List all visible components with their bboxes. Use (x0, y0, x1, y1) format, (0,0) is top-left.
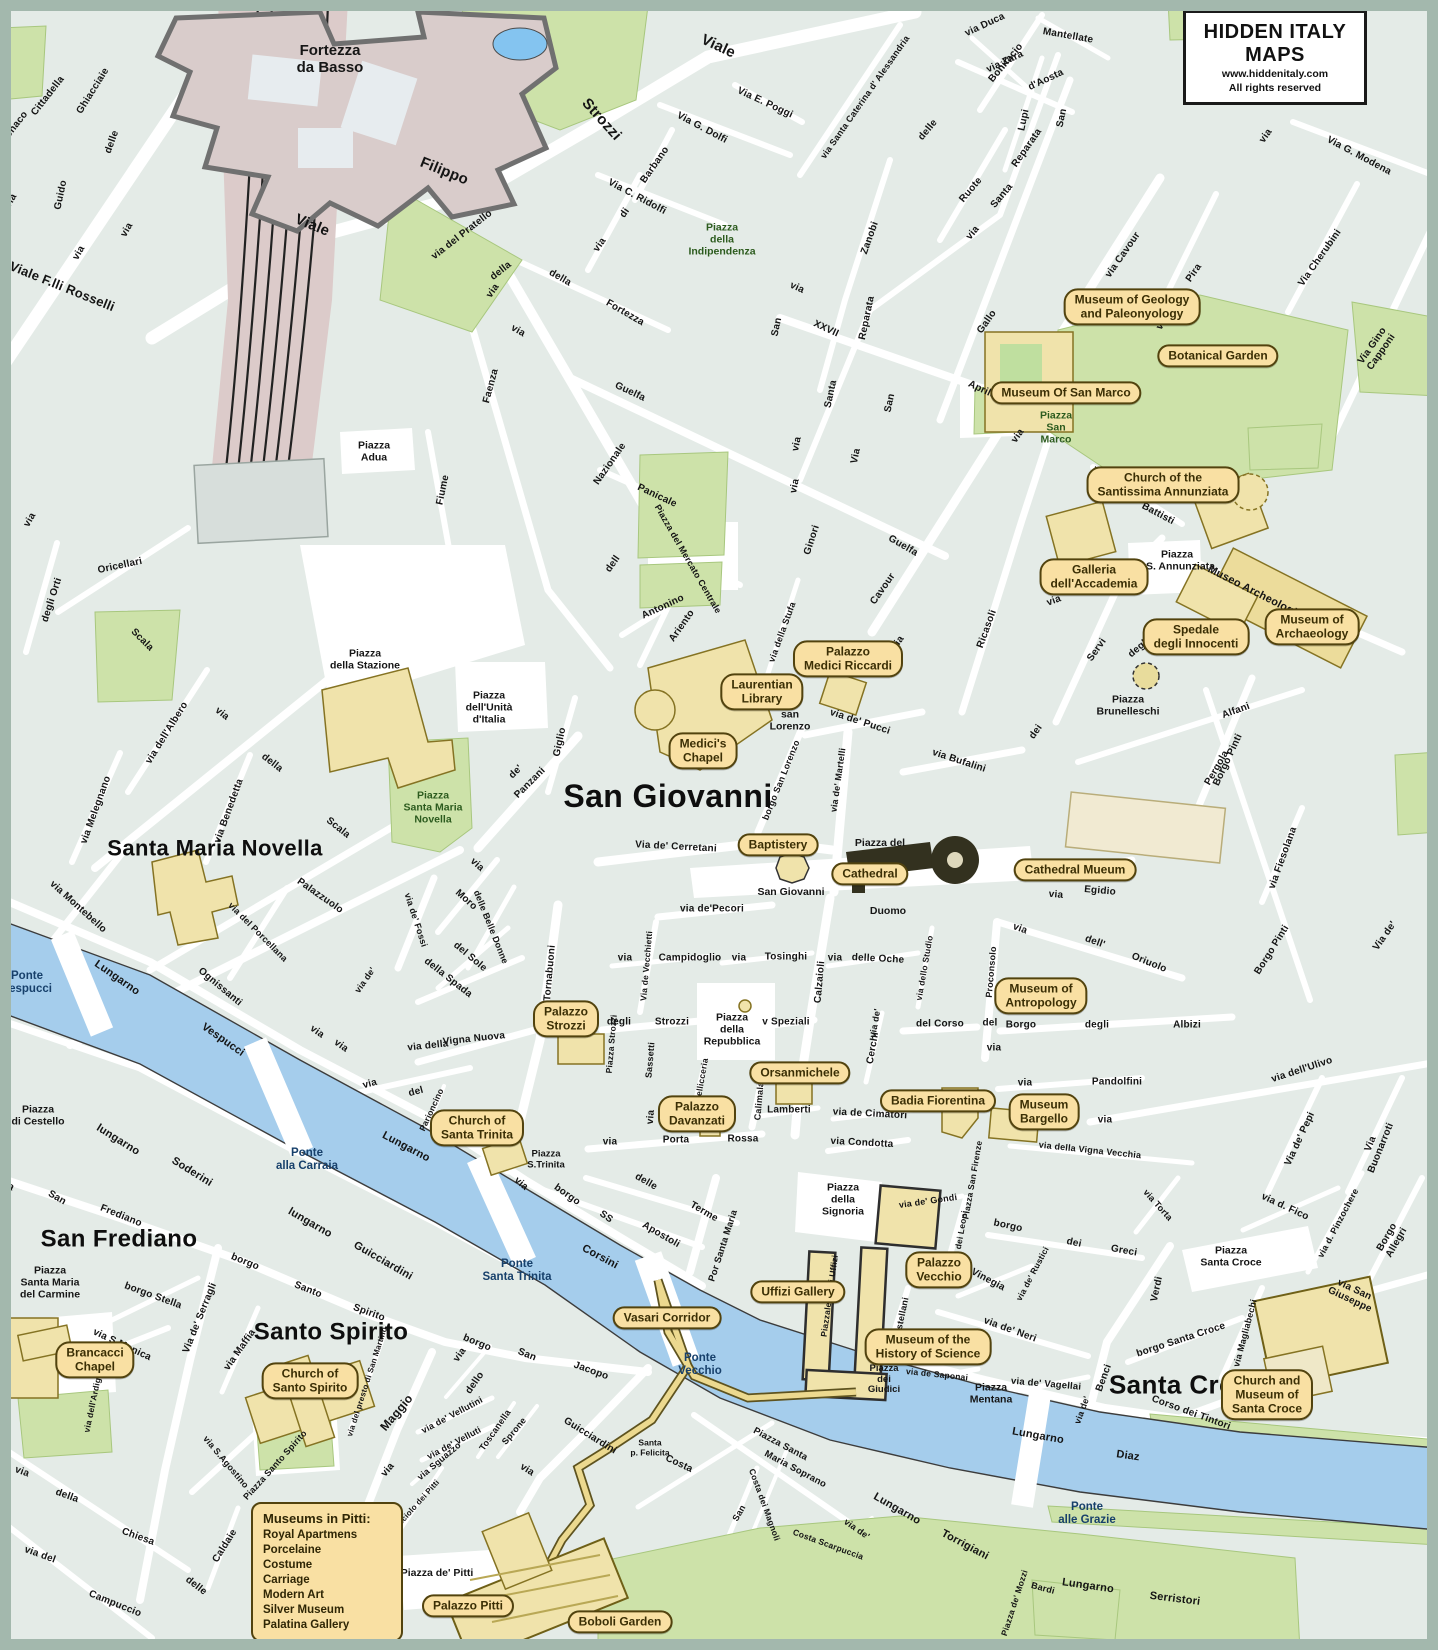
street-label: Tosinghi (765, 951, 808, 962)
street-label: Guelfa (613, 380, 647, 404)
place-label: Piazza della Indipendenza (688, 222, 755, 257)
poi-badge: Palazzo Strozzi (533, 1000, 599, 1037)
street-label: via de' Martelli (828, 747, 847, 813)
street-label: Santa (989, 182, 1016, 211)
poi-badge: Palazzo Medici Riccardi (793, 640, 903, 677)
street-label: via de' Neri (982, 1315, 1038, 1344)
street-label: Santa (823, 379, 840, 409)
street-label: Via Cherubini (1296, 227, 1344, 288)
street-label: Fiume (434, 474, 451, 506)
street-label: via Condotta (830, 1136, 893, 1150)
street-label: via (1098, 1114, 1113, 1125)
street-label: della (54, 1487, 80, 1506)
place-label: Piazza San Marco (1040, 410, 1072, 445)
street-label: Guicciardini (562, 1415, 619, 1456)
street-label: Serristori (1149, 1590, 1201, 1608)
street-label: Ognissanti (196, 965, 244, 1008)
street-label: via del (23, 1544, 57, 1566)
street-label: Diaz (1116, 1448, 1141, 1463)
street-label: Lupi (1016, 108, 1031, 132)
street-label: Tornabuoni (542, 944, 558, 1001)
street-label: via (828, 952, 843, 963)
street-label: Corsini (580, 1242, 620, 1271)
place-label: Piazza del (855, 838, 905, 850)
place-label: Piazza Adua (358, 440, 390, 464)
street-label: Viale F.lli Rosselli (7, 259, 116, 315)
street-label: Piazza de' Mozzi (1000, 1569, 1030, 1638)
street-label: via (518, 1461, 536, 1478)
street-label: via de' Pucci (828, 707, 891, 737)
street-label: Bonifacio (986, 41, 1025, 84)
title-url: www.hiddenitaly.com (1190, 67, 1360, 81)
street-label: via (0, 1177, 16, 1194)
street-label: via (732, 952, 747, 963)
street-label: Torrigiani (939, 1527, 991, 1562)
street-label: via de' (868, 1008, 883, 1038)
street-label: borgo San Lorenzo (760, 739, 801, 822)
street-label: Piazzale degli Uffizi (820, 1254, 841, 1337)
district-label: Santo Spirito (254, 1320, 409, 1347)
street-label: della Spada (422, 956, 474, 1000)
street-label: via del presto di San Martino (346, 1326, 390, 1438)
street-label: Calimala (752, 1081, 765, 1120)
street-label: San (883, 393, 898, 414)
place-label: San Giovanni (757, 887, 824, 899)
street-label: via San Giuseppe (1308, 1267, 1395, 1324)
poi-badge: Church of the Santissima Annunziata (1087, 466, 1240, 503)
poi-badge: Palazzo Davanzati (658, 1095, 736, 1132)
street-label: Soderini (169, 1155, 214, 1190)
street-label: Borgo Allegri (1371, 1214, 1413, 1265)
street-label: Lungarno (871, 1491, 922, 1528)
street-label: degli (1126, 636, 1152, 660)
street-label: Via Gino Capponi (1350, 318, 1403, 381)
street-label: dei Leoni (954, 1210, 970, 1250)
pitti-box-title: Museums in Pitti: (263, 1511, 391, 1526)
title-line2: MAPS (1190, 44, 1360, 67)
street-label: Albizi (1173, 1019, 1201, 1030)
place-label: Piazza di Cestello (11, 1104, 64, 1128)
street-label: via dello Studio (915, 935, 936, 1002)
label-layer: GhiacciaieCittadellaMonacoGuidodelleviav… (0, 0, 1438, 1650)
street-label: Campuccio (87, 1588, 143, 1619)
street-label: Corso dei Tintori (1150, 1394, 1232, 1433)
street-label: via de Saponai (906, 1367, 969, 1383)
street-label: delle (633, 1171, 659, 1193)
street-label: via (379, 1461, 397, 1479)
poi-badge: Galleria dell'Accademia (1040, 558, 1149, 595)
poi-badge: Vasari Corridor (613, 1306, 722, 1329)
street-label: Ricasoli (975, 608, 999, 649)
street-label: Via de' (1371, 919, 1399, 953)
street-label: Frediano (99, 1203, 144, 1230)
place-label: Piazza della Stazione (330, 648, 400, 672)
street-label: dell' (1083, 933, 1106, 951)
street-label: Via C. Ridolfi (606, 177, 668, 217)
pitti-box-item: Royal Apartmens (263, 1528, 391, 1543)
street-label: via (468, 856, 486, 874)
street-label: via de' Fossi (403, 892, 430, 949)
street-label: Lungarno (1061, 1576, 1115, 1595)
place-label: Piazza Santa Maria del Carmine (20, 1265, 80, 1300)
street-label: borgo (992, 1217, 1023, 1234)
street-label: Oricellari (97, 556, 144, 576)
street-label: dei (1027, 723, 1045, 742)
street-label: via (213, 705, 231, 723)
street-label: via (1011, 921, 1028, 936)
street-label: via del Pratello (429, 208, 494, 262)
street-label: via de' Gondi (898, 1192, 958, 1210)
street-label: Costa (664, 1453, 695, 1475)
street-label: Via E. Poggi (735, 85, 794, 121)
street-label: via Sguazzo (415, 1440, 463, 1482)
street-label: via (451, 1346, 468, 1364)
poi-badge: Medici's Chapel (669, 732, 738, 769)
street-label: via (591, 236, 608, 254)
poi-badge: Museum of Antropology (994, 977, 1087, 1014)
street-label: de' (507, 763, 525, 781)
street-label: via (1045, 593, 1062, 608)
street-label: via (790, 436, 804, 453)
place-label: Piazza de' Pitti (401, 1568, 474, 1580)
street-label: via Maffia (222, 1327, 258, 1372)
street-label: degli Orti (40, 576, 65, 623)
place-label: Fortezza da Basso (297, 43, 364, 77)
title-box: HIDDEN ITALY MAPS www.hiddenitaly.com Al… (1183, 10, 1367, 105)
street-label: Lungarno (1011, 1425, 1065, 1446)
street-label: via (603, 1136, 618, 1147)
street-label: Fortezza (604, 298, 646, 329)
street-label: Scala (128, 626, 155, 653)
street-label: via (1009, 427, 1026, 445)
street-label: della (259, 751, 285, 774)
place-label: Piazza Santa Maria Novella (404, 790, 463, 825)
street-label: degli (1085, 1019, 1109, 1030)
poi-badge: Cathedral (831, 862, 908, 885)
street-label: via Melegnano (79, 774, 114, 845)
street-label: Pira (1184, 262, 1204, 285)
poi-badge: Brancacci Chapel (55, 1341, 134, 1378)
poi-badge: Badia Fiorentina (880, 1089, 996, 1112)
street-label: via de'Pecori (680, 903, 744, 914)
street-label: via Zara (985, 49, 1025, 76)
street-label: via del Porcellana (226, 900, 289, 963)
place-label: Piazza Mentana (970, 1382, 1013, 1406)
street-label: via dell'Ulivo (1270, 1055, 1334, 1085)
district-label: San Frediano (41, 1227, 198, 1254)
street-label: San (730, 1503, 747, 1523)
street-label: della (547, 267, 573, 289)
place-label: Duomo (870, 906, 906, 918)
street-label: Cavour (868, 571, 898, 607)
street-label: Lungarno (92, 958, 142, 998)
street-label: via S.Monica (91, 1327, 153, 1364)
pitti-box-item: Costume (263, 1558, 391, 1573)
street-label: Strozzi (655, 1016, 689, 1027)
street-label: dei (1065, 1236, 1082, 1250)
street-label: del (407, 1085, 424, 1100)
street-label: borgo Stella (123, 1280, 183, 1311)
street-label: Piazza Santo Spirito (241, 1428, 309, 1502)
street-label: via de Cimatori (832, 1106, 907, 1121)
street-label: Viale (292, 212, 331, 241)
street-label: via de' Vagellai (1010, 1377, 1081, 1394)
poi-badge: Baptistery (738, 833, 819, 856)
street-label: Proconsolo (984, 946, 999, 998)
street-label: Antonino (640, 592, 686, 621)
street-label: via (987, 1042, 1002, 1053)
street-label: Porta (663, 1134, 690, 1145)
street-label: via della Vigna Vecchia (1038, 1140, 1141, 1161)
street-label: Via G. Dolfi (675, 110, 729, 146)
street-label: Vigna Nuova (442, 1030, 505, 1048)
street-label: XXVII (812, 318, 841, 339)
street-label: Campidoglio (659, 952, 722, 963)
street-label: Parioncino (418, 1087, 446, 1133)
place-label: Piazza Santa Croce (1200, 1245, 1261, 1269)
street-label: Terme (688, 1200, 720, 1225)
poi-badge: Boboli Garden (568, 1610, 673, 1633)
street-label: delle Belle Donne (472, 889, 511, 965)
street-label: Via de Vecchietti (639, 931, 655, 1002)
street-label: delle Oche (851, 952, 904, 966)
street-label: del Corso (916, 1018, 964, 1029)
street-label: San (1055, 108, 1070, 129)
street-label: via (308, 1023, 326, 1040)
poi-badge: Church of Santa Trinita (430, 1109, 524, 1146)
poi-badge: Museum Bargello (1009, 1093, 1080, 1130)
street-label: Barbano (638, 145, 671, 186)
poi-badge: Spedale degli Innocenti (1143, 618, 1250, 655)
street-label: Spirito (352, 1302, 387, 1324)
street-label: Via de' Serragli (181, 1281, 219, 1355)
street-label: lungarno (286, 1206, 334, 1241)
street-label: Borgo (1006, 1019, 1036, 1030)
street-label: via (889, 634, 906, 652)
street-label: Borgo Pinti (1211, 732, 1245, 788)
bridge-label: Ponte Vespucci (2, 970, 52, 996)
poi-badge: Museum of the History of Science (865, 1328, 992, 1365)
street-label: Faenza (481, 368, 501, 405)
place-label: Piazza dell'Unità d'Italia (466, 690, 513, 725)
place-label: Piazza della Repubblica (704, 1012, 761, 1047)
street-label: via d. Pinzochere (1315, 1187, 1360, 1260)
street-label: Bardi (1030, 1580, 1056, 1596)
street-label: Nazionale (592, 441, 629, 487)
street-label: Chiesa (120, 1526, 156, 1548)
street-label: via (964, 224, 982, 242)
street-label: via Magliabechi (1231, 1298, 1259, 1368)
street-label: del (982, 1017, 997, 1028)
street-label: Giglio (551, 726, 568, 757)
street-label: borgo (229, 1251, 260, 1272)
poi-badge: Cathedral Mueum (1014, 858, 1137, 881)
street-label: Alfani (1220, 701, 1251, 721)
street-label: Jacopo (572, 1360, 610, 1383)
street-label: Viale (698, 32, 738, 62)
street-label: Egidio (1084, 884, 1117, 898)
street-label: via dell'Ardiglione (82, 1357, 107, 1434)
pitti-box-item: Silver Museum (263, 1603, 391, 1618)
street-label: Ruote (957, 175, 984, 205)
street-label: via (22, 511, 39, 529)
street-label: Lungarno (380, 1129, 432, 1164)
poi-badge: Orsanmichele (749, 1061, 850, 1084)
street-label: degli (607, 1016, 631, 1027)
street-label: Via de' Cerretani (635, 839, 717, 854)
street-label: delle (103, 129, 122, 155)
street-label: Ginori (802, 524, 822, 557)
street-label: d'Aosta (1027, 67, 1066, 93)
street-label: via (119, 221, 136, 239)
street-label: Benci (1094, 1363, 1114, 1393)
street-label: Piazza del Mercato Centrale (653, 503, 724, 615)
district-label: San Giovanni (563, 779, 772, 815)
street-label: v Speziali (762, 1016, 810, 1027)
street-label: Gallo (975, 308, 999, 336)
street-label: Por Santa Maria (707, 1209, 740, 1283)
street-label: borgo (461, 1332, 492, 1353)
place-label: san Lorenzo (770, 709, 811, 733)
street-label: SS (597, 1208, 615, 1225)
street-label: Sprone (500, 1415, 528, 1446)
street-label: Cittadella (29, 74, 67, 118)
street-label: di (618, 206, 632, 220)
pitti-box-item: Modern Art (263, 1588, 391, 1603)
street-label: Castellani (891, 1296, 910, 1342)
street-label: Mantellate (1042, 26, 1094, 46)
street-label: Moro (453, 887, 479, 912)
poi-badge: Museum of Geology and Paleonyology (1064, 288, 1201, 325)
street-label: Toscanella (477, 1408, 513, 1453)
poi-badge: Uffizi Gallery (750, 1280, 845, 1303)
street-label: via (1048, 889, 1063, 901)
place-label: Piazza S.Trinita (527, 1149, 564, 1170)
pitti-museums-box: Museums in Pitti: Royal Apartmens Porcel… (251, 1502, 403, 1642)
street-label: via Torta (1141, 1187, 1174, 1222)
street-label: via Duca (963, 11, 1006, 39)
street-label: via (484, 282, 501, 300)
street-label: Zanobi (859, 220, 881, 256)
street-label: Palazzuolo (295, 876, 345, 916)
street-label: via (788, 478, 802, 495)
street-label: Costa dei Magnoli (747, 1468, 782, 1543)
street-label: Cerchi (865, 1031, 882, 1065)
street-label: via (788, 280, 806, 296)
street-label: Costa Scarpuccia (791, 1528, 864, 1562)
street-label: via (362, 1077, 379, 1092)
place-label: Piazza della Signoria (822, 1182, 864, 1217)
street-label: via de' (842, 1517, 872, 1542)
street-label: via (332, 1037, 350, 1054)
district-label: Santa Croce (1109, 1370, 1265, 1399)
street-label: Vinegia (969, 1266, 1007, 1293)
place-label: Piazza Brunelleschi (1096, 694, 1159, 718)
street-label: via Santa Caterina d' Alessandria (818, 34, 911, 161)
street-label: Monaco (0, 109, 30, 147)
street-label: Calzaioli (813, 960, 828, 1003)
street-label: Pandolfini (1092, 1076, 1142, 1087)
street-label: Rossa (727, 1133, 758, 1144)
place-label: Santa p. Felicita (630, 1438, 669, 1457)
street-label: Piazza Strozzi (605, 1014, 620, 1074)
street-label: Piazza San Firenze (961, 1140, 984, 1220)
street-label: via Benedetta (212, 777, 246, 844)
street-label: Sassetti (643, 1042, 656, 1079)
street-label: via Fiesolana (1267, 825, 1300, 890)
street-label: via de' (1072, 1395, 1091, 1426)
pitti-box-item: Carriage (263, 1573, 391, 1588)
street-label: via della (407, 1038, 449, 1053)
street-label: lungarno (94, 1122, 142, 1158)
street-label: Strozzi (578, 96, 624, 145)
poi-badge: Palazzo Pitti (422, 1594, 514, 1617)
street-label: Greci (1110, 1243, 1138, 1259)
street-label: Guido (52, 179, 69, 211)
pitti-box-item: Porcelaine (263, 1543, 391, 1558)
street-label: via (1257, 127, 1274, 145)
street-label: San (516, 1346, 538, 1363)
street-label: via d. Fico (1259, 1191, 1310, 1223)
street-label: via de' Rustici (1015, 1245, 1051, 1302)
street-label: San (770, 317, 785, 338)
street-label: via Cavour (1103, 230, 1143, 280)
street-label: via S.Agostino (201, 1434, 251, 1491)
street-label: Museo Archeologico (1206, 563, 1311, 625)
place-label: Piazza SS. Annunziata (1139, 549, 1215, 573)
street-label: delle (183, 1574, 209, 1597)
street-label: via Montebello (47, 879, 108, 936)
street-label: Aprile (966, 379, 998, 402)
street-label: San (46, 1188, 68, 1207)
street-label: Lamberti (767, 1104, 811, 1115)
street-label: Via (849, 447, 863, 464)
street-label: della (488, 259, 514, 282)
place-label: Piazza dei Giudici (868, 1364, 900, 1396)
street-label: Oriuolo (1130, 951, 1168, 975)
street-label: via (1091, 464, 1109, 481)
poi-badge: Church and Museum of Santa Croce (1221, 1369, 1313, 1420)
poi-badge: Botanical Garden (1157, 344, 1278, 367)
street-label: borgo Santa Croce (1135, 1320, 1227, 1359)
street-label: via de' (353, 965, 378, 995)
street-label: Verdi (1149, 1275, 1165, 1302)
street-label: Via G. Modena (1325, 134, 1393, 177)
street-label: Reparata (1010, 127, 1045, 170)
street-label: Caldaie (210, 1527, 239, 1564)
poi-badge: Museum of Archaeology (1265, 608, 1360, 645)
street-label: Guicciardini (351, 1239, 414, 1283)
district-label: Santa Maria Novella (107, 837, 322, 862)
street-label: Servi (1085, 636, 1109, 663)
street-label: via (13, 1464, 30, 1479)
street-label: Guelfa (886, 533, 920, 559)
street-label: del Sole (451, 940, 489, 974)
street-label: Maria Soprano (762, 1449, 828, 1491)
florence-tourist-map: GhiacciaieCittadellaMonacoGuidodelleviav… (0, 0, 1438, 1650)
street-label: Panicale (636, 482, 679, 510)
street-label: via (618, 952, 633, 963)
street-label: via (71, 244, 88, 262)
street-label: Filippo (417, 155, 470, 190)
street-label: Ghiacciaie (74, 66, 111, 116)
pitti-box-item: Palatina Gallery (263, 1618, 391, 1633)
street-label: Pergola (1203, 749, 1232, 788)
street-label: via della Stufa (766, 600, 797, 663)
street-label: Scala (324, 815, 352, 841)
street-label: via de' Vellutini (420, 1395, 485, 1436)
street-label: Borgo Pinti (1252, 923, 1291, 976)
